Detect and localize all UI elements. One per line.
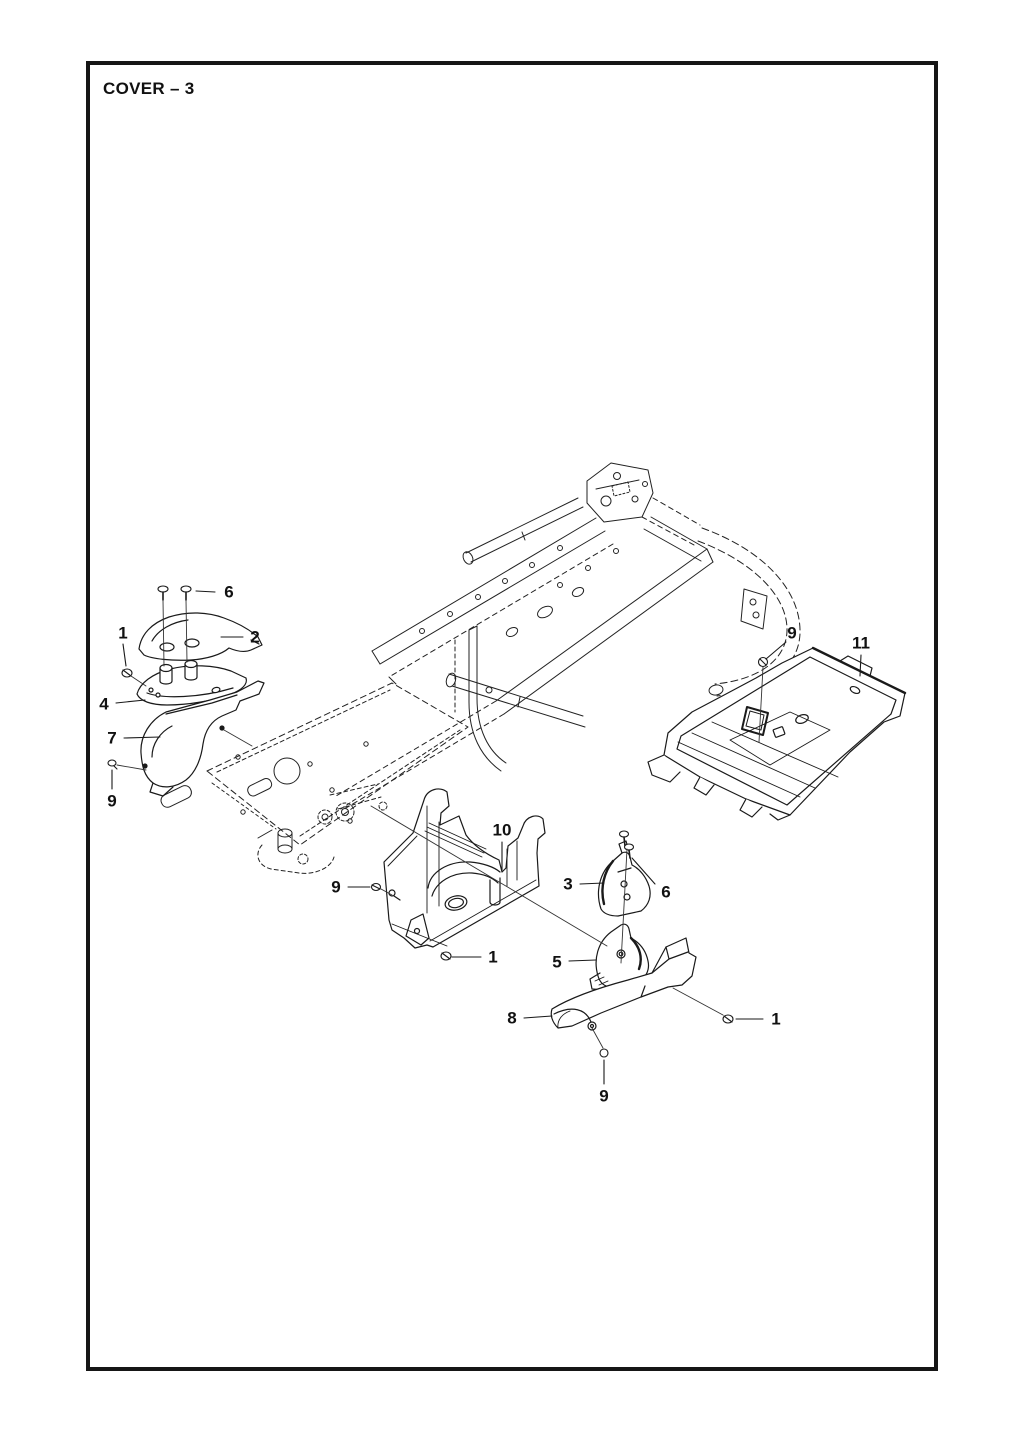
screw-9-mid — [372, 884, 381, 891]
screw-1-left — [122, 669, 132, 677]
screw-6a — [158, 586, 168, 600]
chassis-frame-drawing — [159, 463, 800, 873]
callout-leader-lines — [112, 591, 861, 1084]
screw-1-mid — [441, 952, 451, 960]
leader-line-4 — [116, 700, 145, 703]
screw-9-left — [108, 760, 117, 769]
leader-line-1 — [123, 644, 126, 666]
part-2-top-cover — [139, 613, 262, 660]
manual-page: { "page": { "title": "COVER – 3" }, "dia… — [0, 0, 1024, 1435]
part-11-floor-pan — [648, 648, 905, 820]
leader-line-9 — [766, 642, 786, 659]
leader-line-8 — [524, 1016, 552, 1018]
screw-9-bottom — [600, 1049, 608, 1057]
exploded-parts-diagram — [0, 0, 1024, 1435]
screw-6b — [181, 586, 191, 600]
part-10-center-cover — [384, 789, 545, 948]
leader-line-5 — [569, 960, 596, 961]
screw-1-right — [723, 1015, 733, 1023]
leader-line-6 — [196, 591, 215, 592]
